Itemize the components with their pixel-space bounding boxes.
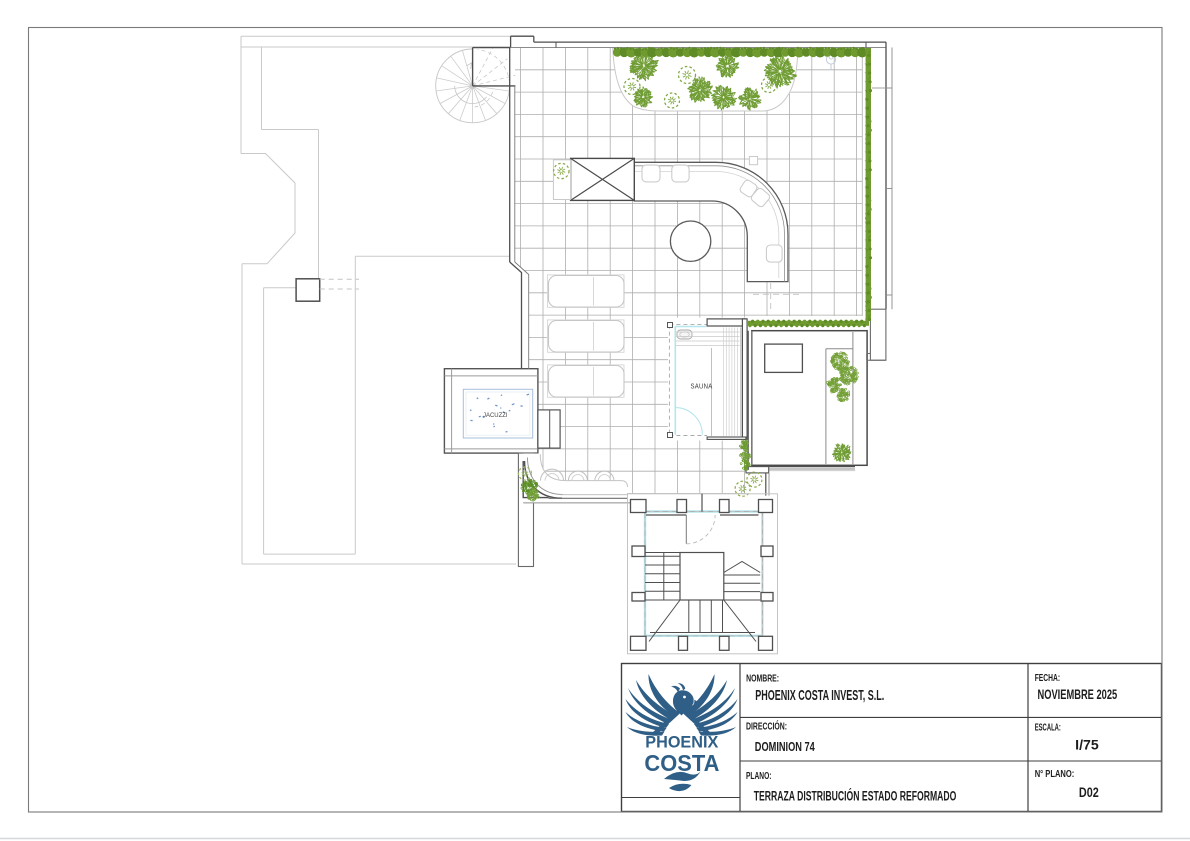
svg-text:ESCALA:: ESCALA: <box>1035 721 1061 733</box>
svg-text:PLANO:: PLANO: <box>746 770 772 782</box>
svg-text:I/75: I/75 <box>1075 738 1099 753</box>
svg-text:D02: D02 <box>1079 785 1099 800</box>
svg-text:FECHA:: FECHA: <box>1035 672 1060 684</box>
svg-text:DOMINION 74: DOMINION 74 <box>755 739 815 754</box>
svg-text:NOMBRE:: NOMBRE: <box>746 673 779 685</box>
svg-text:SAUNA: SAUNA <box>691 383 713 391</box>
svg-text:DIRECCIÓN:: DIRECCIÓN: <box>746 720 787 733</box>
svg-text:JACUZZI: JACUZZI <box>483 412 508 419</box>
svg-text:NOVIEMBRE 2025: NOVIEMBRE 2025 <box>1038 686 1118 702</box>
svg-text:N° PLANO:: N° PLANO: <box>1035 768 1075 780</box>
svg-text:PHOENIX: PHOENIX <box>645 733 719 752</box>
svg-text:PHOENIX COSTA INVEST, S.L.: PHOENIX COSTA INVEST, S.L. <box>755 687 884 704</box>
svg-text:TERRAZA DISTRIBUCIÓN ESTADO RE: TERRAZA DISTRIBUCIÓN ESTADO REFORMADO <box>754 787 957 805</box>
